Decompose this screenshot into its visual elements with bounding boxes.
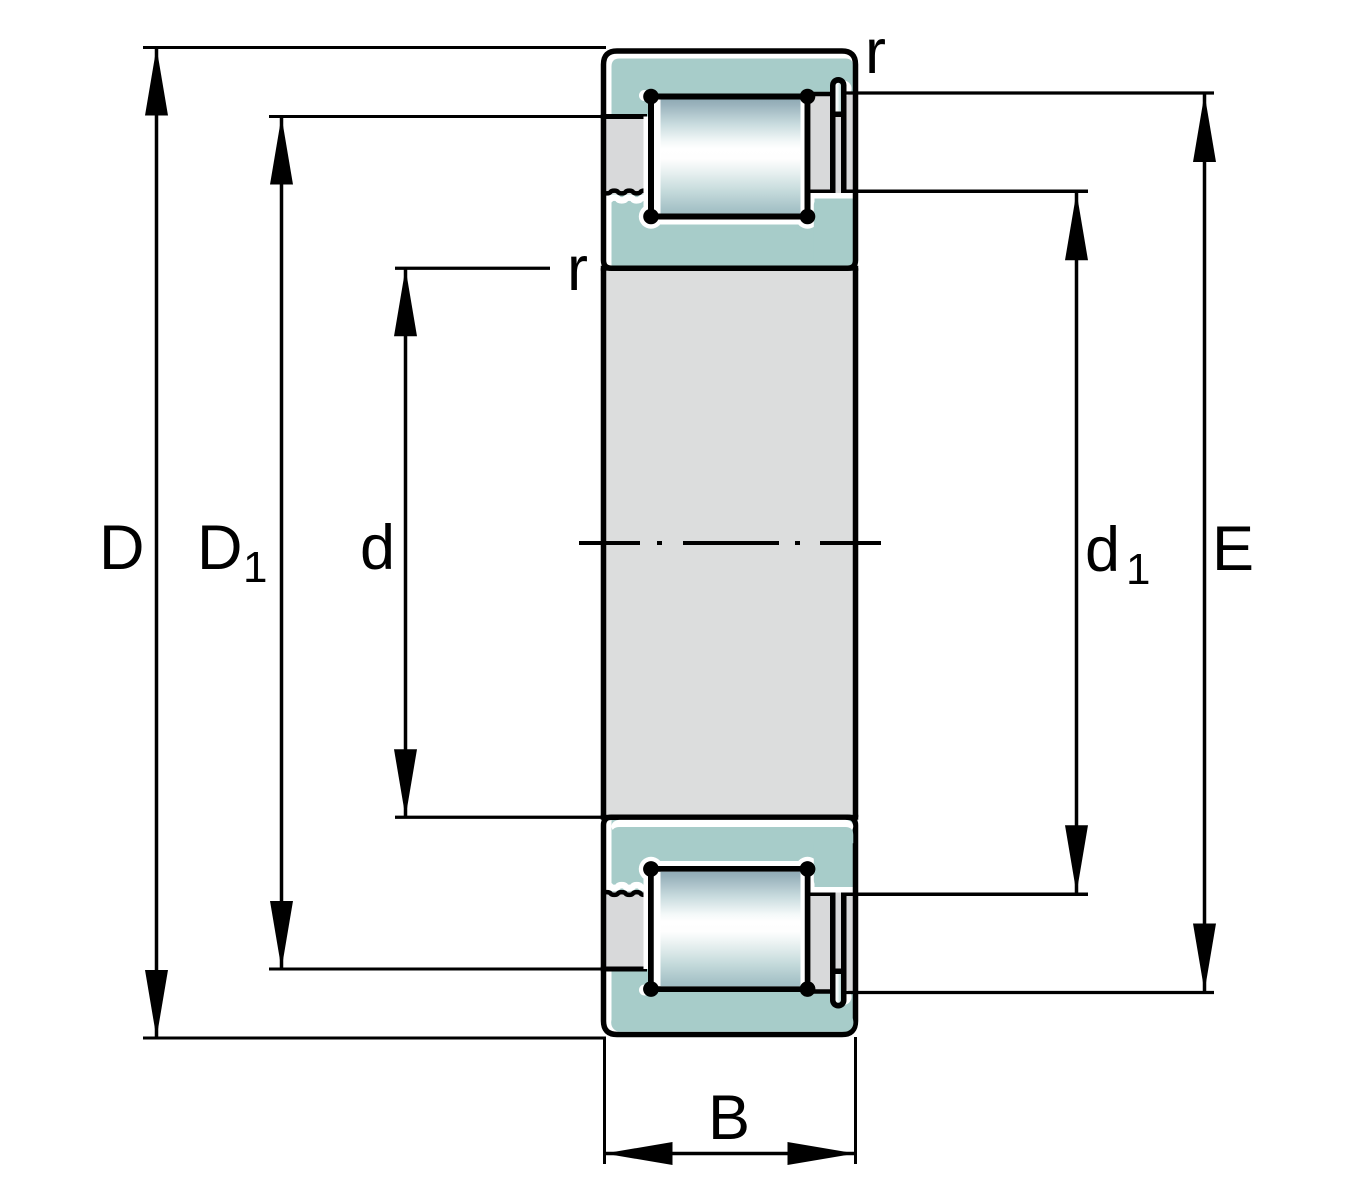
svg-text:B: B [708, 1083, 750, 1153]
svg-text:r: r [865, 17, 886, 87]
svg-text:d: d [360, 513, 395, 583]
svg-text:E: E [1212, 514, 1254, 584]
svg-text:1: 1 [1126, 545, 1150, 594]
svg-text:1: 1 [243, 543, 267, 592]
svg-text:r: r [567, 234, 588, 304]
svg-text:d: d [1085, 515, 1120, 585]
svg-text:D: D [99, 513, 145, 583]
svg-text:D: D [197, 513, 243, 583]
